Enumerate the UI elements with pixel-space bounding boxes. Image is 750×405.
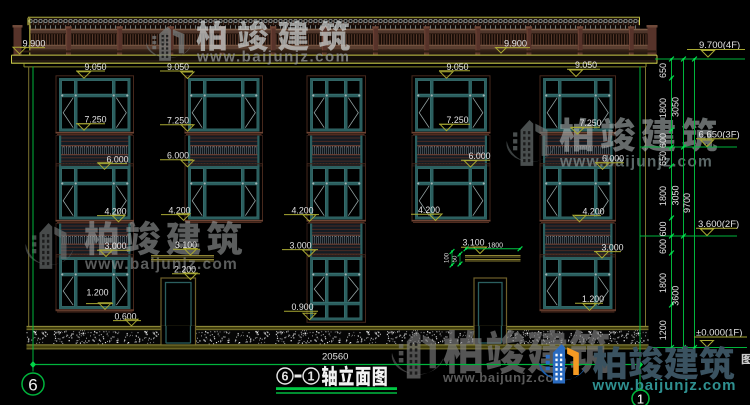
svg-text:1.200: 1.200	[582, 294, 604, 304]
svg-text:1: 1	[637, 392, 644, 405]
svg-text:9.050: 9.050	[575, 60, 597, 70]
svg-text:9.900: 9.900	[504, 38, 527, 48]
svg-text:7.250: 7.250	[447, 115, 469, 125]
svg-text:9700: 9700	[682, 193, 692, 213]
svg-text:www.baijunjz.com: www.baijunjz.com	[442, 370, 566, 385]
svg-text:1.200: 1.200	[87, 288, 109, 298]
svg-text:100: 100	[445, 252, 451, 263]
svg-text:3600: 3600	[671, 286, 681, 306]
svg-text:3.000: 3.000	[290, 241, 312, 251]
svg-text:0.900: 0.900	[292, 302, 314, 312]
svg-text:1800: 1800	[658, 186, 668, 206]
svg-text:3050: 3050	[671, 185, 681, 205]
svg-text:1800: 1800	[658, 273, 668, 293]
svg-text:600: 600	[658, 133, 668, 148]
svg-text:1: 1	[308, 370, 315, 384]
svg-text:3050: 3050	[671, 97, 681, 117]
svg-text:7.250: 7.250	[167, 116, 189, 126]
svg-text:4.200: 4.200	[292, 206, 314, 216]
svg-text:6: 6	[282, 370, 289, 384]
svg-text:www.baijunjz.com: www.baijunjz.com	[84, 256, 238, 273]
svg-text:www.baijunjz.com: www.baijunjz.com	[559, 153, 713, 170]
svg-text:650: 650	[658, 63, 668, 78]
svg-text:6: 6	[28, 376, 37, 395]
svg-text:20560: 20560	[322, 352, 348, 363]
svg-text:600: 600	[658, 239, 668, 254]
svg-text:www.baijunjz.com: www.baijunjz.com	[592, 377, 737, 394]
svg-text:600: 600	[658, 221, 668, 236]
svg-text:7.250: 7.250	[580, 118, 602, 128]
svg-text:www.baijunjz.com: www.baijunjz.com	[196, 49, 350, 66]
svg-text:1800: 1800	[658, 98, 668, 118]
svg-text:3.100: 3.100	[463, 238, 485, 248]
svg-text:6.000: 6.000	[167, 151, 189, 161]
svg-text:1200: 1200	[658, 320, 668, 340]
svg-text:650: 650	[658, 151, 668, 166]
svg-text:6.000: 6.000	[469, 151, 491, 161]
svg-text:6.000: 6.000	[602, 154, 624, 164]
svg-text:7.250: 7.250	[85, 115, 107, 125]
